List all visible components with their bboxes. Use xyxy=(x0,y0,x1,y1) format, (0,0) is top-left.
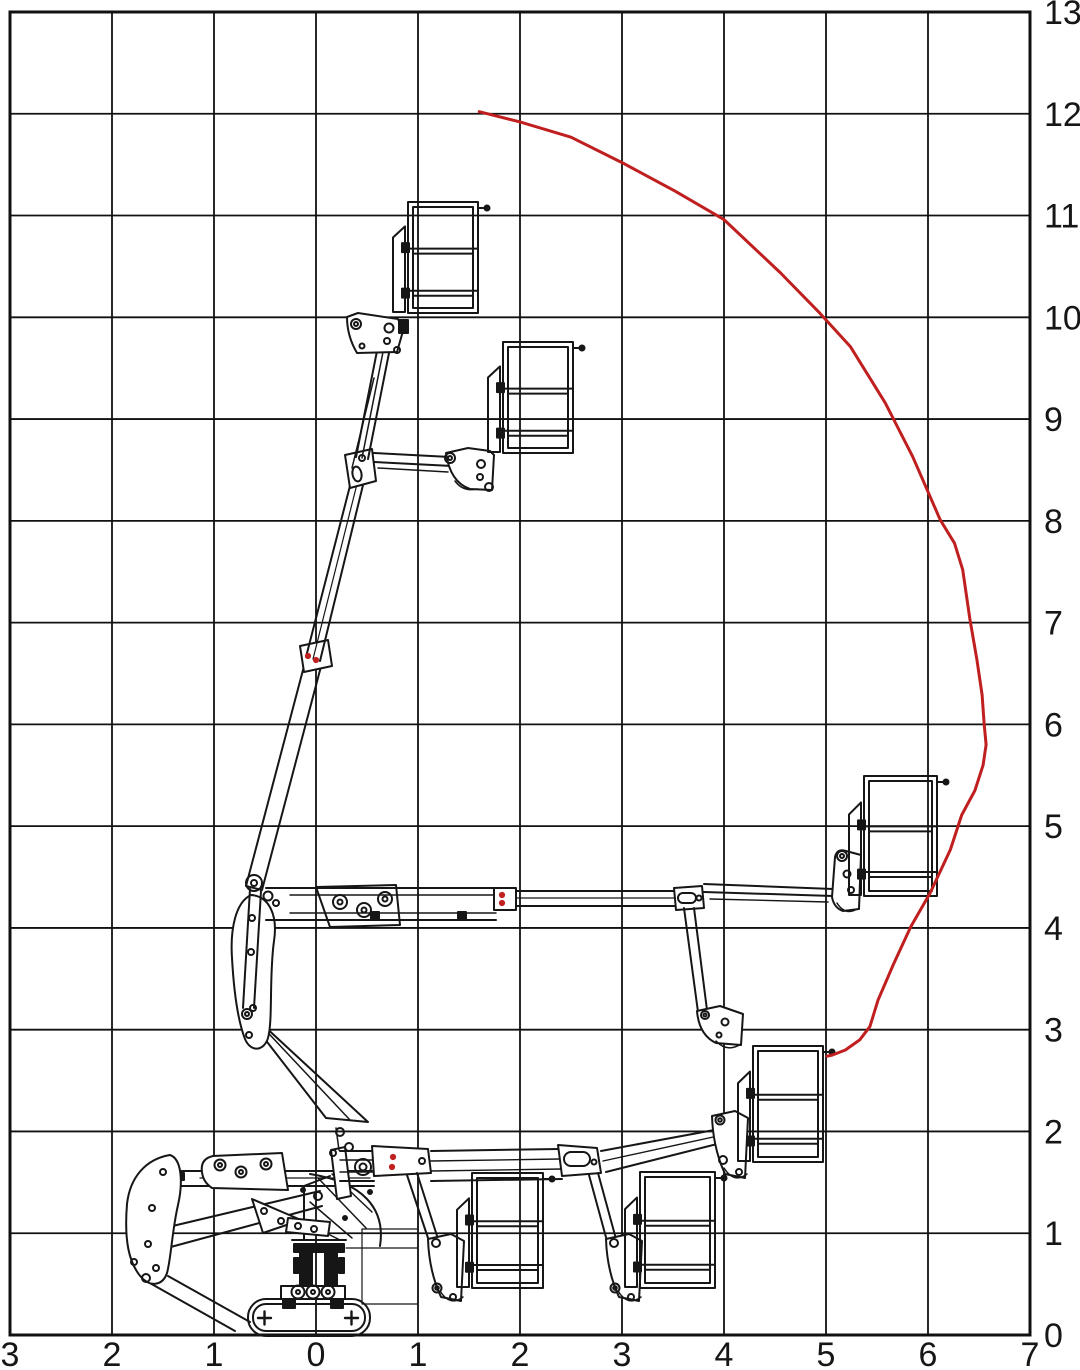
x-axis-tick-label: 4 xyxy=(715,1336,734,1370)
x-axis-tick-label: 1 xyxy=(409,1336,428,1370)
overlap-marker-dot xyxy=(313,657,319,663)
overlap-marker-dot xyxy=(390,1154,396,1160)
jib-horizontal xyxy=(374,448,494,491)
basket xyxy=(738,1046,835,1162)
jib-down-left xyxy=(407,1173,464,1301)
basket-mount xyxy=(402,289,409,298)
main-boom xyxy=(246,449,376,890)
basket-rail-inner xyxy=(477,1178,538,1283)
basket-mount xyxy=(402,243,409,252)
basket-mount xyxy=(497,383,504,392)
reach-envelope-line xyxy=(479,112,986,1056)
platform-baskets xyxy=(393,202,949,1288)
jib-up xyxy=(347,313,408,468)
basket-mount xyxy=(747,1089,754,1098)
jib-down-center xyxy=(589,1173,642,1301)
y-axis-tick-label: 3 xyxy=(1044,1012,1063,1050)
y-axis-tick-label: 9 xyxy=(1044,401,1063,439)
jib-down-mid xyxy=(684,908,743,1048)
basket xyxy=(457,1173,555,1288)
basket xyxy=(393,202,490,313)
y-axis-tick-label: 10 xyxy=(1044,299,1080,337)
x-axis-tick-label: 0 xyxy=(307,1336,326,1370)
jib-plate-right xyxy=(712,1111,748,1178)
y-axis-tick-label: 1 xyxy=(1044,1215,1063,1253)
y-axis-tick-label: 12 xyxy=(1044,96,1080,134)
overlap-marker-dot xyxy=(389,1164,395,1170)
x-axis-tick-label: 3 xyxy=(613,1336,632,1370)
y-axis-tick-label: 11 xyxy=(1044,198,1079,236)
basket-mount xyxy=(466,1216,473,1225)
basket-hook xyxy=(944,780,949,785)
basket-hook xyxy=(485,206,490,211)
y-axis-tick-label: 8 xyxy=(1044,503,1063,541)
basket-rail-inner xyxy=(758,1051,818,1157)
overlap-marker-dot xyxy=(499,892,505,898)
y-axis-tick-label: 7 xyxy=(1044,605,1063,643)
x-axis-tick-label: 7 xyxy=(1021,1336,1040,1370)
crawler-tracks xyxy=(248,1299,370,1336)
basket-rail-inner xyxy=(869,781,932,891)
working-envelope-diagram: 32101234567012345678910111213 xyxy=(0,0,1080,1370)
pedestal xyxy=(281,1240,346,1308)
y-axis-tick-label: 2 xyxy=(1044,1113,1063,1151)
grid xyxy=(10,12,1030,1335)
basket xyxy=(625,1172,727,1288)
x-axis-tick-label: 3 xyxy=(1,1336,20,1370)
basket xyxy=(488,342,585,453)
basket-mount xyxy=(634,1215,641,1224)
x-axis-tick-label: 1 xyxy=(205,1336,224,1370)
basket xyxy=(849,776,949,896)
y-axis-tick-label: 5 xyxy=(1044,808,1063,846)
mid-boom xyxy=(266,885,704,927)
basket-door xyxy=(393,226,405,312)
boom-lift-drawing xyxy=(126,313,861,1336)
y-axis-tick-label: 13 xyxy=(1044,0,1080,32)
x-axis-tick-label: 2 xyxy=(103,1336,122,1370)
basket-hook xyxy=(580,346,585,351)
basket-door xyxy=(488,366,500,452)
x-axis-tick-label: 6 xyxy=(919,1336,938,1370)
y-axis-tick-label: 0 xyxy=(1044,1317,1063,1355)
y-axis-tick-label: 6 xyxy=(1044,706,1063,744)
basket-mount xyxy=(747,1136,754,1145)
basket-mount xyxy=(466,1263,473,1272)
x-axis-tick-label: 2 xyxy=(511,1336,530,1370)
diagram-canvas: 32101234567012345678910111213 xyxy=(0,0,1080,1370)
basket-mount xyxy=(858,870,865,879)
basket-mount xyxy=(634,1262,641,1271)
basket-rail-inner xyxy=(508,347,568,448)
x-axis-tick-label: 5 xyxy=(817,1336,836,1370)
jib-up-right xyxy=(704,850,861,911)
basket-rail-inner xyxy=(413,207,473,308)
basket-mount xyxy=(858,820,865,829)
reach-envelope-curve xyxy=(479,112,986,1056)
basket-rail-inner xyxy=(645,1177,710,1283)
overlap-marker-dot xyxy=(305,653,311,659)
basket-mount xyxy=(497,429,504,438)
basket-hook xyxy=(550,1177,555,1182)
basket-hook xyxy=(722,1176,727,1181)
overlap-marker-dot xyxy=(499,900,505,906)
y-axis-tick-label: 4 xyxy=(1044,910,1063,948)
